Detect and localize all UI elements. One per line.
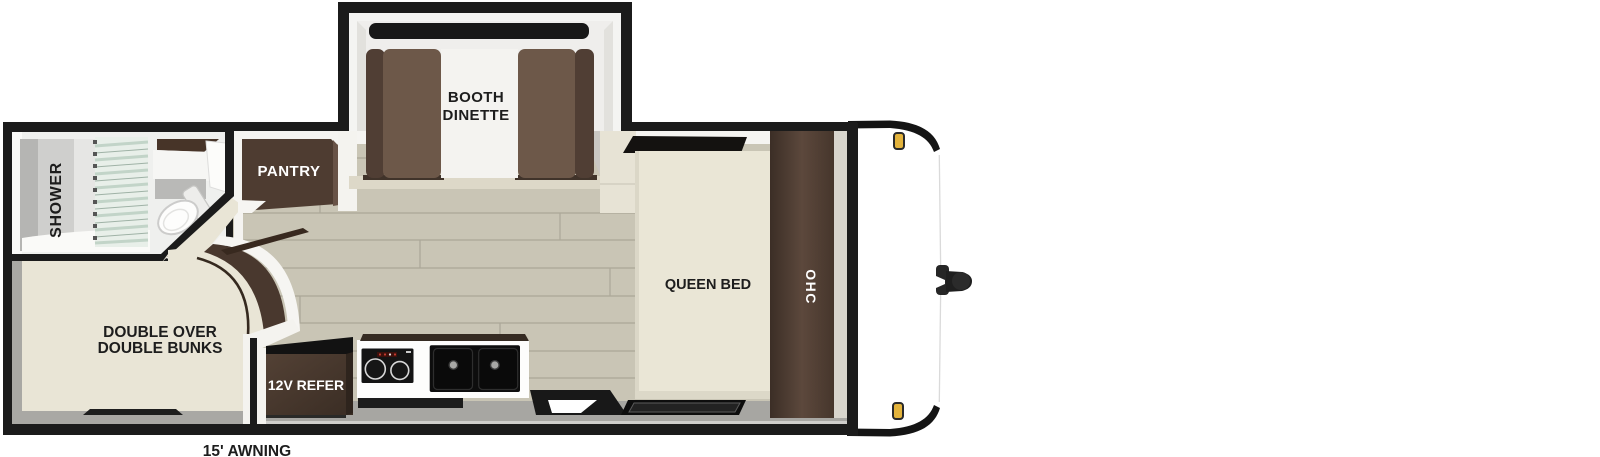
svg-text:DINETTE: DINETTE [443, 107, 510, 124]
svg-text:QUEEN BED: QUEEN BED [665, 277, 751, 293]
svg-text:SHOWER: SHOWER [48, 162, 65, 238]
svg-text:DOUBLE BUNKS: DOUBLE BUNKS [98, 340, 223, 357]
svg-text:PANTRY: PANTRY [258, 163, 321, 180]
svg-text:15' AWNING: 15' AWNING [203, 443, 291, 457]
svg-text:BOOTH: BOOTH [448, 89, 504, 106]
svg-text:OHC: OHC [803, 269, 819, 305]
svg-text:DOUBLE OVER: DOUBLE OVER [103, 324, 217, 341]
svg-text:12V REFER: 12V REFER [268, 377, 344, 393]
